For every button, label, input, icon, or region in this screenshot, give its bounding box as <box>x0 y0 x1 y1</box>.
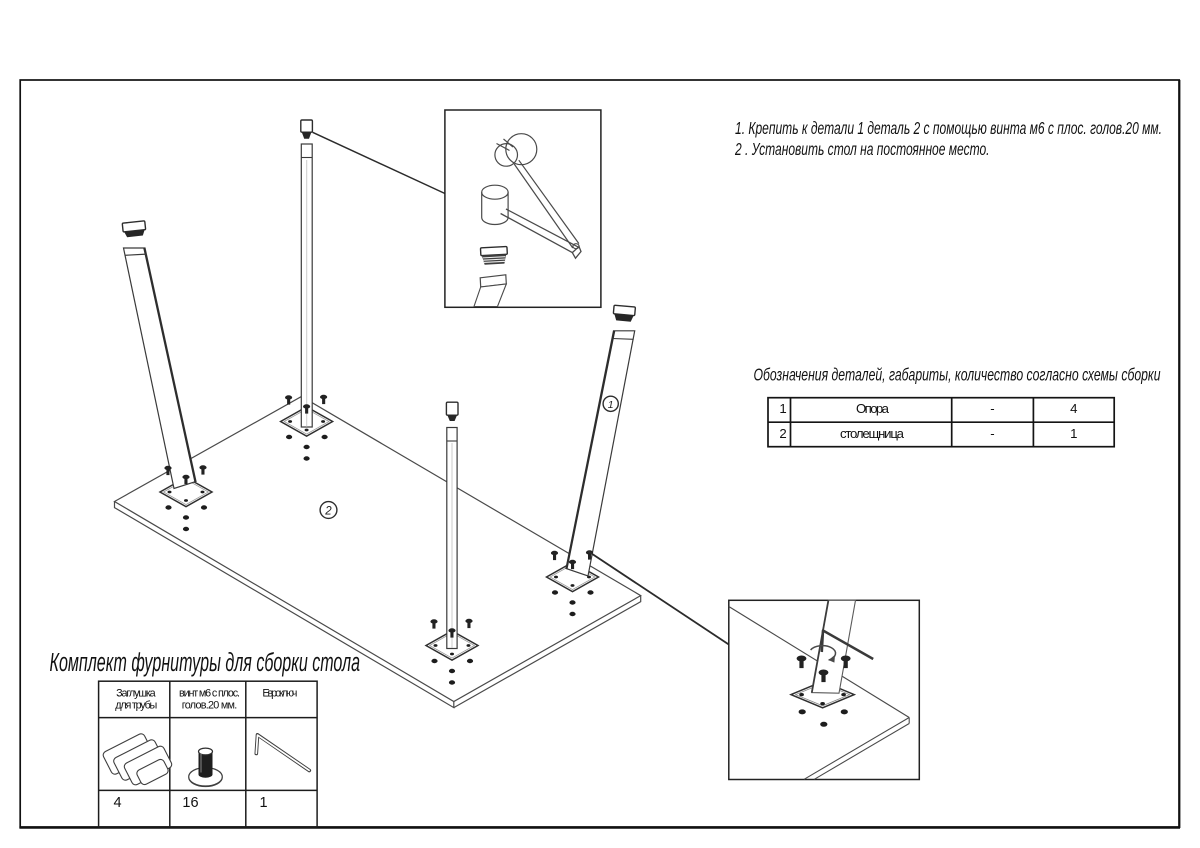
svg-text:Комплект фурнитуры для сборки: Комплект фурнитуры для сборки стола <box>50 649 361 677</box>
svg-text:голов.20 мм.: голов.20 мм. <box>182 700 238 712</box>
svg-text:Обозначения деталей, габариты,: Обозначения деталей, габариты, количеств… <box>754 365 1161 385</box>
svg-text:-: - <box>990 401 994 416</box>
svg-text:Заглушка: Заглушка <box>116 687 156 699</box>
svg-text:1. Крепить к детали 1 деталь 2: 1. Крепить к детали 1 деталь 2 с помощью… <box>735 118 1162 138</box>
svg-text:2: 2 <box>779 426 786 441</box>
svg-text:2 . Установить стол на постоян: 2 . Установить стол на постоянное место. <box>734 139 989 159</box>
svg-text:для трубы: для трубы <box>115 700 157 712</box>
svg-text:16: 16 <box>182 795 198 811</box>
svg-text:1: 1 <box>259 795 267 811</box>
svg-text:-: - <box>990 426 994 441</box>
svg-text:1: 1 <box>779 401 786 416</box>
svg-text:винт м6 с плос.: винт м6 с плос. <box>179 687 240 699</box>
svg-text:4: 4 <box>113 795 121 811</box>
svg-text:Евроключ: Евроключ <box>262 687 297 699</box>
svg-text:Опора: Опора <box>856 401 890 416</box>
svg-text:1: 1 <box>608 399 614 411</box>
svg-text:2: 2 <box>324 506 332 518</box>
svg-text:4: 4 <box>1070 401 1077 416</box>
svg-text:1: 1 <box>1070 426 1077 441</box>
svg-text:столещница: столещница <box>840 426 905 441</box>
